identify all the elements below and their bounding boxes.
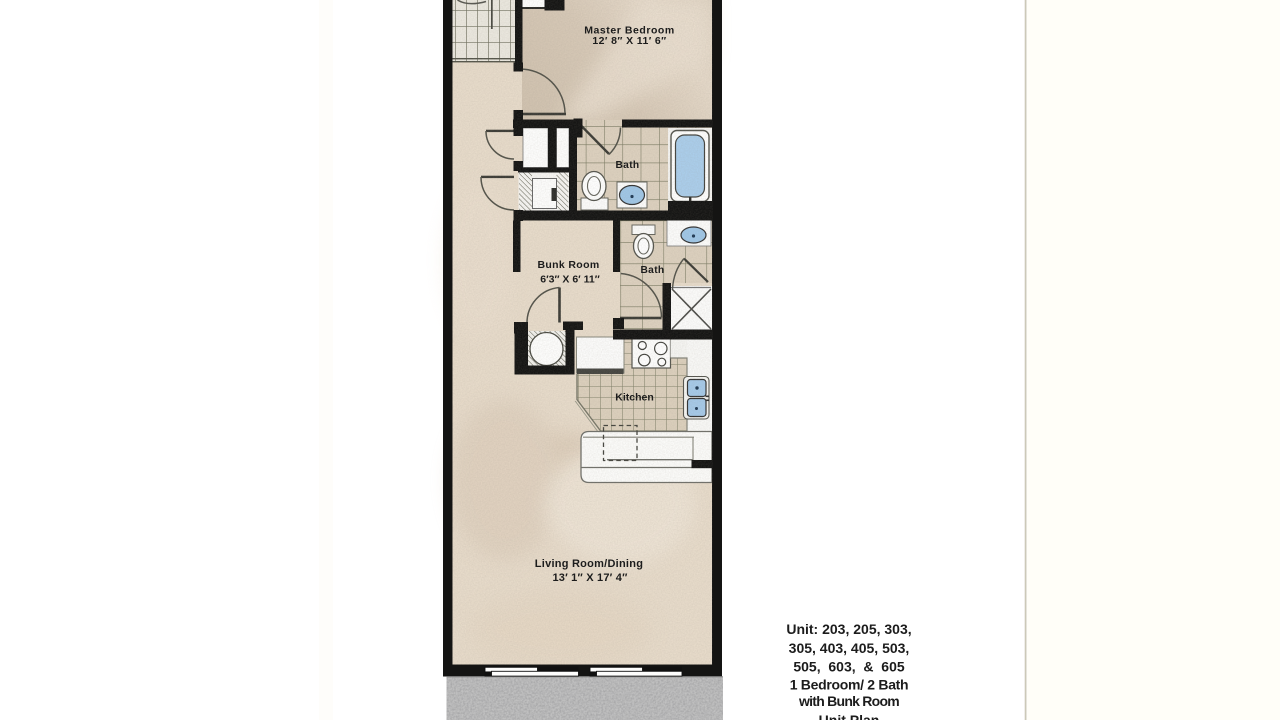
svg-text:1 Bedroom/ 2 Bath: 1 Bedroom/ 2 Bath: [790, 677, 909, 693]
svg-text:Bunk Room: Bunk Room: [537, 259, 599, 271]
svg-text:305, 403, 405, 503,: 305, 403, 405, 503,: [789, 640, 910, 656]
svg-text:Unit: 203, 205, 303,: Unit: 203, 205, 303,: [786, 621, 911, 637]
svg-text:Unit Plan: Unit Plan: [819, 712, 880, 720]
svg-text:13′ 1″ X 17′ 4″: 13′ 1″ X 17′ 4″: [552, 572, 628, 584]
svg-text:Kitchen: Kitchen: [615, 392, 654, 404]
svg-text:Bath: Bath: [615, 160, 639, 171]
svg-text:6′3″ X 6′ 11″: 6′3″ X 6′ 11″: [540, 274, 599, 286]
svg-text:with Bunk Room: with Bunk Room: [798, 693, 899, 709]
svg-text:Living Room/Dining: Living Room/Dining: [535, 558, 643, 570]
svg-text:505, 603, & 605: 505, 603, & 605: [793, 659, 905, 675]
svg-text:Bath: Bath: [640, 265, 664, 276]
svg-text:12′ 8″ X 11′ 6″: 12′ 8″ X 11′ 6″: [592, 35, 666, 47]
